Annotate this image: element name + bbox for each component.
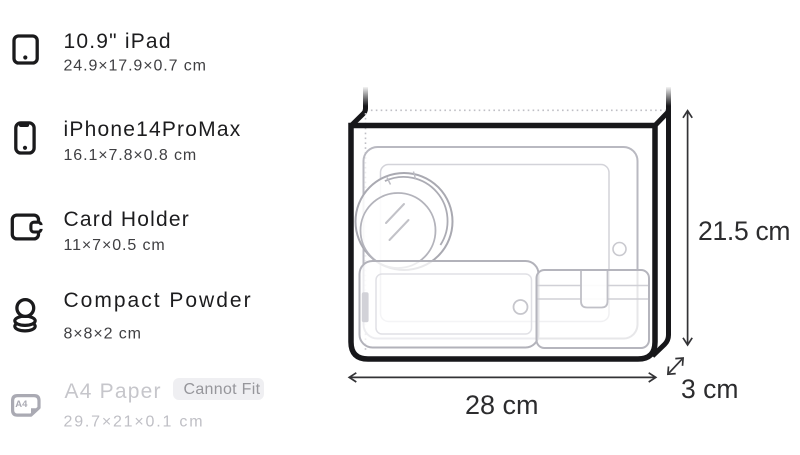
- svg-text:A4: A4: [15, 399, 28, 410]
- svg-text:28 cm: 28 cm: [465, 390, 539, 420]
- svg-text:3 cm: 3 cm: [681, 374, 738, 404]
- svg-text:Card Holder: Card Holder: [64, 208, 190, 231]
- svg-text:A4 Paper: A4 Paper: [65, 380, 162, 403]
- svg-text:11×7×0.5 cm: 11×7×0.5 cm: [64, 237, 166, 254]
- svg-text:16.1×7.8×0.8 cm: 16.1×7.8×0.8 cm: [64, 147, 198, 164]
- svg-text:24.9×17.9×0.7 cm: 24.9×17.9×0.7 cm: [64, 58, 207, 75]
- svg-text:21.5 cm: 21.5 cm: [698, 216, 790, 246]
- svg-text:Cannot Fit: Cannot Fit: [184, 381, 261, 398]
- svg-text:29.7×21×0.1 cm: 29.7×21×0.1 cm: [64, 414, 205, 431]
- svg-text:10.9" iPad: 10.9" iPad: [64, 30, 172, 53]
- svg-text:Compact Powder: Compact Powder: [64, 289, 253, 312]
- svg-text:iPhone14ProMax: iPhone14ProMax: [64, 118, 242, 141]
- svg-text:8×8×2 cm: 8×8×2 cm: [64, 325, 142, 342]
